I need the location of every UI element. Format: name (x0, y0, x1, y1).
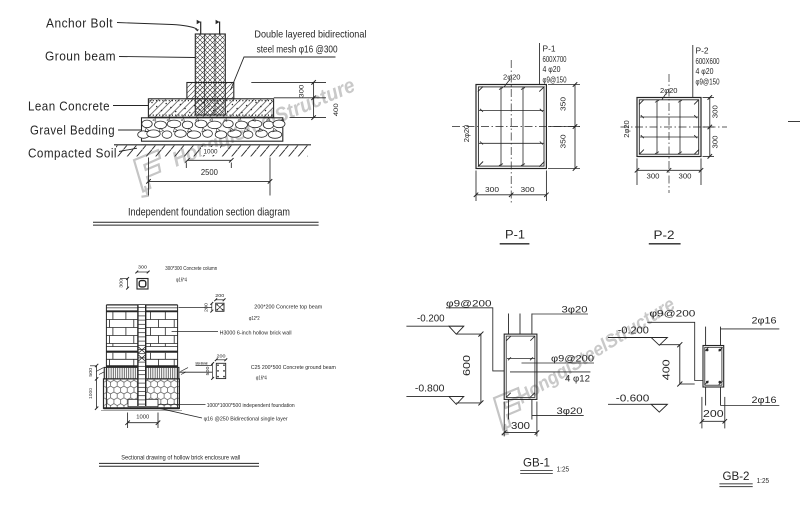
svg-text:Compacted Soil: Compacted Soil (28, 147, 117, 161)
svg-text:300: 300 (485, 185, 499, 194)
svg-text:2500: 2500 (201, 168, 219, 177)
svg-text:1000*1000*500 independent foun: 1000*1000*500 independent foundation (207, 403, 295, 409)
svg-text:300: 300 (713, 105, 720, 118)
svg-text:C25 200*500 Concrete ground be: C25 200*500 Concrete ground beam (251, 365, 336, 371)
svg-text:P-1: P-1 (505, 228, 525, 242)
svg-text:bottom blind wall: bottom blind wall (196, 361, 208, 365)
svg-text:φ12*2: φ12*2 (249, 316, 260, 322)
svg-text:Double layered bidirectional: Double layered bidirectional (254, 29, 366, 41)
svg-text:200*200 Concrete top beam: 200*200 Concrete top beam (254, 305, 322, 311)
svg-text:2φ20: 2φ20 (622, 120, 631, 138)
svg-text:1000: 1000 (204, 150, 219, 156)
svg-text:Lean Concrete: Lean Concrete (28, 100, 110, 114)
svg-text:1:25: 1:25 (757, 478, 770, 485)
svg-text:500: 500 (205, 366, 210, 376)
svg-text:300: 300 (118, 278, 123, 288)
svg-text:200: 200 (215, 293, 225, 298)
svg-text:300: 300 (647, 174, 660, 181)
svg-text:2φ20: 2φ20 (660, 86, 678, 95)
svg-text:200: 200 (217, 353, 227, 358)
svg-text:steel mesh φ16 @300: steel mesh φ16 @300 (257, 44, 338, 56)
svg-text:600: 600 (461, 355, 473, 376)
svg-text:400: 400 (333, 103, 340, 116)
svg-text:-0.200: -0.200 (618, 326, 649, 337)
svg-text:Sectional drawing of hollow br: Sectional drawing of hollow brick enclos… (121, 454, 240, 461)
svg-text:P-2: P-2 (654, 228, 675, 242)
svg-text:300: 300 (138, 265, 148, 270)
svg-text:300: 300 (521, 185, 535, 194)
svg-text:φ16*4: φ16*4 (256, 375, 267, 381)
svg-text:4 φ20: 4 φ20 (696, 67, 714, 76)
svg-text:300*300 Concrete column: 300*300 Concrete column (165, 266, 217, 272)
svg-text:-0.800: -0.800 (415, 384, 445, 395)
svg-text:200: 200 (703, 409, 724, 420)
svg-text:φ16*4: φ16*4 (176, 278, 187, 284)
svg-text:Groun beam: Groun beam (45, 50, 116, 64)
svg-text:500: 500 (88, 367, 93, 377)
svg-text:300: 300 (679, 174, 692, 181)
svg-text:φ9@150: φ9@150 (543, 75, 567, 84)
svg-text:350: 350 (559, 97, 568, 111)
svg-text:φ9@200: φ9@200 (649, 309, 695, 320)
svg-text:P-2: P-2 (696, 47, 710, 56)
svg-text:1000: 1000 (136, 414, 149, 420)
svg-text:φ9@150: φ9@150 (696, 77, 720, 86)
svg-text:1:25: 1:25 (557, 467, 570, 474)
svg-text:2φ20: 2φ20 (462, 125, 471, 143)
svg-text:1000: 1000 (88, 387, 93, 399)
svg-text:2φ20: 2φ20 (503, 73, 521, 82)
svg-text:600X600: 600X600 (696, 57, 720, 66)
svg-text:H3000 6-inch hollow brick wal: H3000 6-inch hollow brick wall (220, 330, 292, 336)
svg-text:600X700: 600X700 (543, 55, 567, 64)
svg-text:4 φ12: 4 φ12 (565, 373, 590, 384)
svg-text:GB-1: GB-1 (523, 455, 550, 469)
svg-text:P-1: P-1 (543, 45, 557, 54)
svg-text:Gravel Bedding: Gravel Bedding (30, 124, 115, 138)
svg-text:GB-2: GB-2 (723, 469, 750, 483)
svg-text:400: 400 (660, 359, 672, 380)
svg-text:300: 300 (511, 421, 530, 432)
svg-text:350: 350 (559, 135, 568, 149)
svg-text:2φ16: 2φ16 (752, 315, 777, 326)
svg-text:300: 300 (299, 84, 306, 97)
svg-text:Independent foundation section: Independent foundation section diagram (128, 207, 290, 219)
svg-text:-0.200: -0.200 (417, 314, 445, 325)
svg-text:4 φ20: 4 φ20 (543, 65, 561, 74)
svg-text:-0.600: -0.600 (616, 394, 650, 405)
svg-text:2φ16: 2φ16 (752, 395, 777, 406)
svg-text:Anchor Bolt: Anchor Bolt (46, 17, 113, 31)
svg-text:300: 300 (713, 135, 720, 148)
svg-text:φ16 @250 Bidirectional single: φ16 @250 Bidirectional single layer (204, 416, 288, 422)
